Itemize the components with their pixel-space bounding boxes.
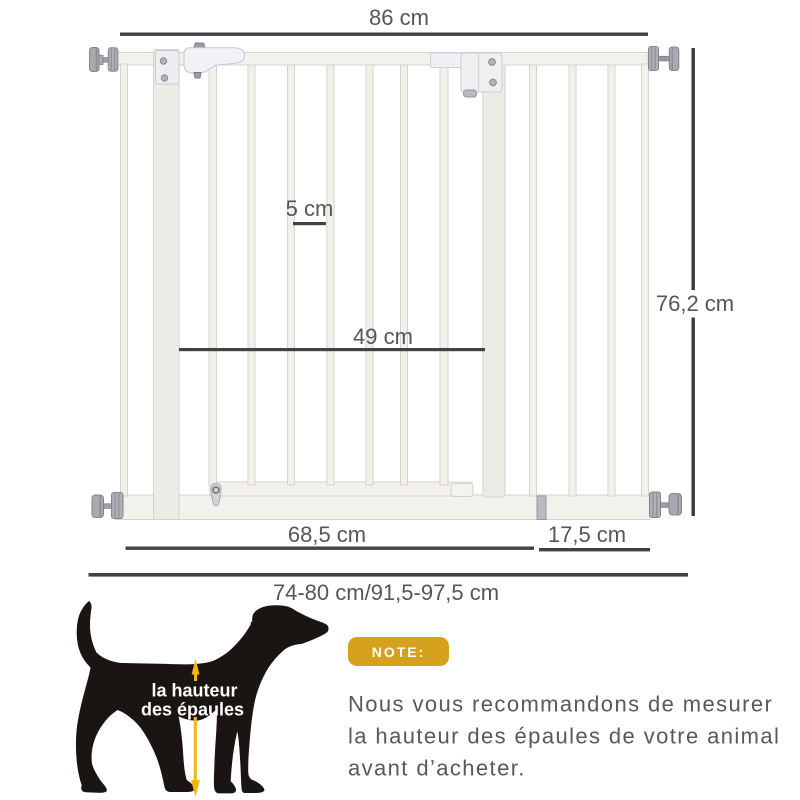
svg-text:la hauteur des épaules de votr: la hauteur des épaules de votre animal [348, 724, 780, 749]
svg-text:68,5 cm: 68,5 cm [288, 522, 366, 547]
svg-text:des épaules: des épaules [141, 700, 244, 720]
svg-text:76,2 cm: 76,2 cm [656, 291, 734, 316]
svg-text:5 cm: 5 cm [286, 196, 334, 221]
svg-text:49 cm: 49 cm [353, 324, 413, 349]
svg-text:17,5 cm: 17,5 cm [548, 522, 626, 547]
svg-text:NOTE:: NOTE: [372, 644, 426, 660]
svg-text:86 cm: 86 cm [369, 5, 429, 30]
svg-text:Nous vous recommandons de mesu: Nous vous recommandons de mesurer [348, 692, 773, 717]
svg-text:la hauteur: la hauteur [151, 681, 237, 701]
svg-text:74-80 cm/91,5-97,5 cm: 74-80 cm/91,5-97,5 cm [273, 580, 499, 605]
svg-text:avant d’acheter.: avant d’acheter. [348, 756, 526, 781]
